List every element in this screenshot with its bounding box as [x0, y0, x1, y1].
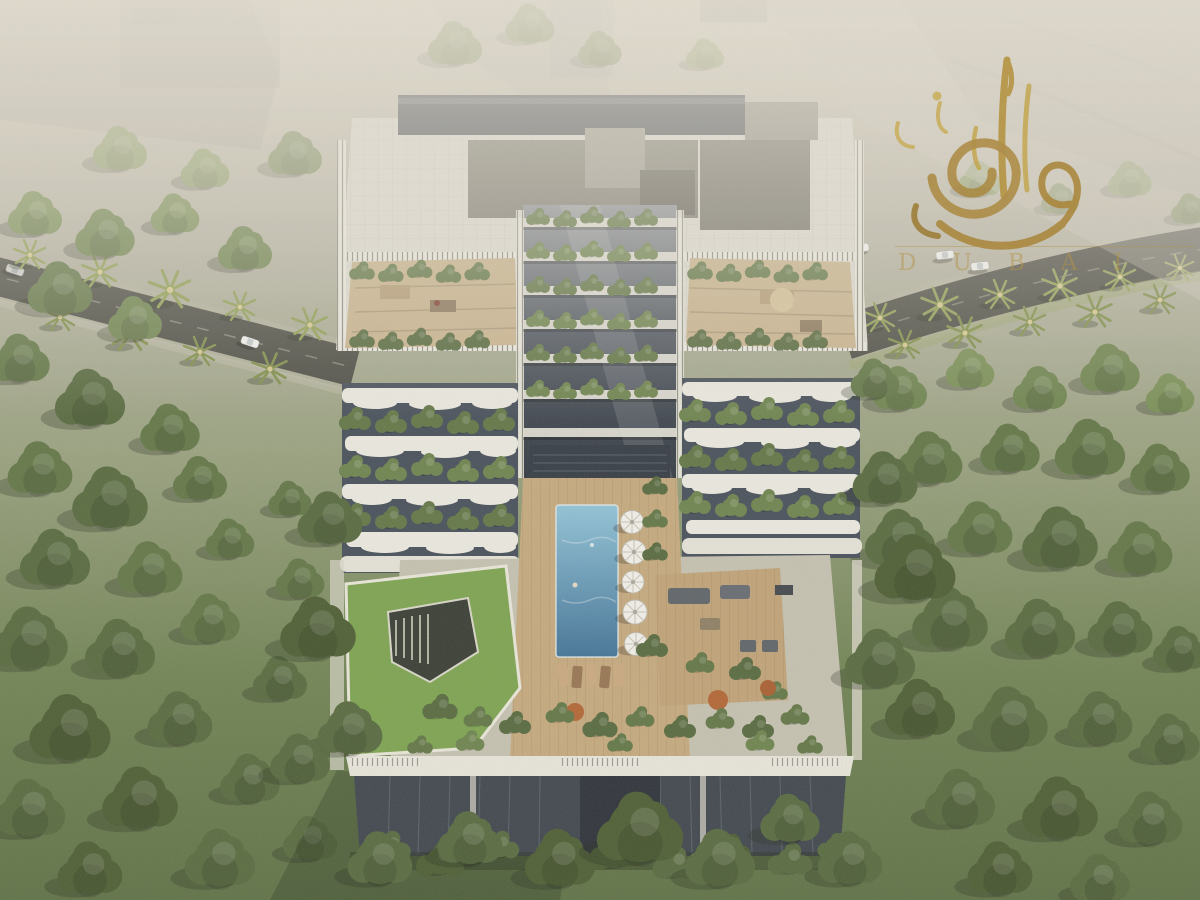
- aerial-render: DUBAI: [0, 0, 1200, 900]
- film-grain: [0, 0, 1200, 900]
- scene-canvas: [0, 0, 1200, 900]
